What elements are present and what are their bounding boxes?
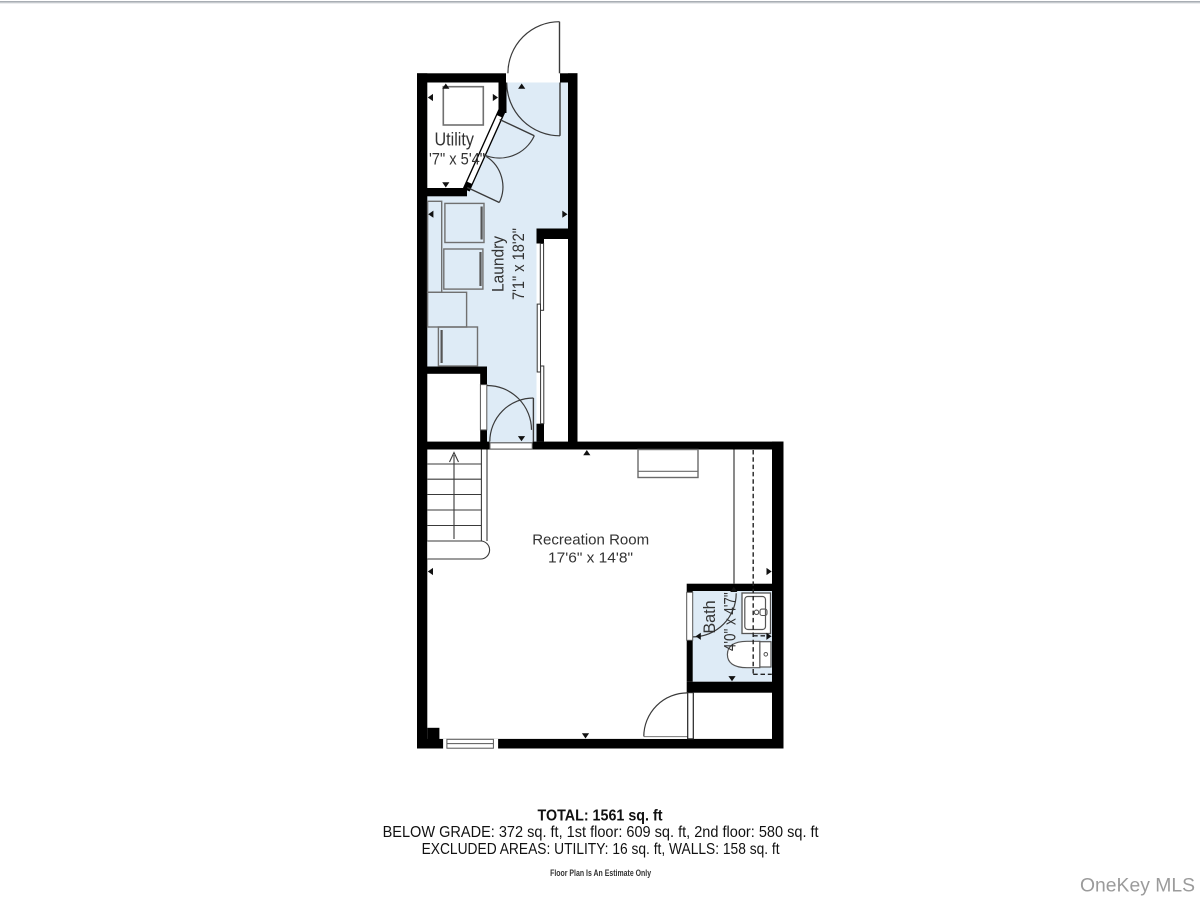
svg-text:Utility: Utility <box>435 129 474 149</box>
svg-text:4'0" x 4'7": 4'0" x 4'7" <box>720 592 739 651</box>
svg-text:Bath: Bath <box>700 600 719 633</box>
svg-text:OneKey MLS: OneKey MLS <box>1080 876 1195 897</box>
svg-text:TOTAL: 1561 sq. ft: TOTAL: 1561 sq. ft <box>538 807 664 824</box>
svg-text:Floor Plan Is An Estimate Only: Floor Plan Is An Estimate Only <box>550 868 651 878</box>
svg-text:BELOW GRADE: 372 sq. ft, 1st f: BELOW GRADE: 372 sq. ft, 1st floor: 609 … <box>383 824 820 841</box>
svg-text:'7" x 5'4": '7" x 5'4" <box>429 150 485 169</box>
svg-text:Laundry: Laundry <box>490 235 508 292</box>
svg-text:7'1" x 18'2": 7'1" x 18'2" <box>510 228 528 300</box>
svg-text:17'6" x 14'8": 17'6" x 14'8" <box>548 549 633 566</box>
svg-text:EXCLUDED AREAS: UTILITY: 16 sq: EXCLUDED AREAS: UTILITY: 16 sq. ft, WALL… <box>422 841 781 858</box>
svg-text:Recreation Room: Recreation Room <box>532 531 649 548</box>
